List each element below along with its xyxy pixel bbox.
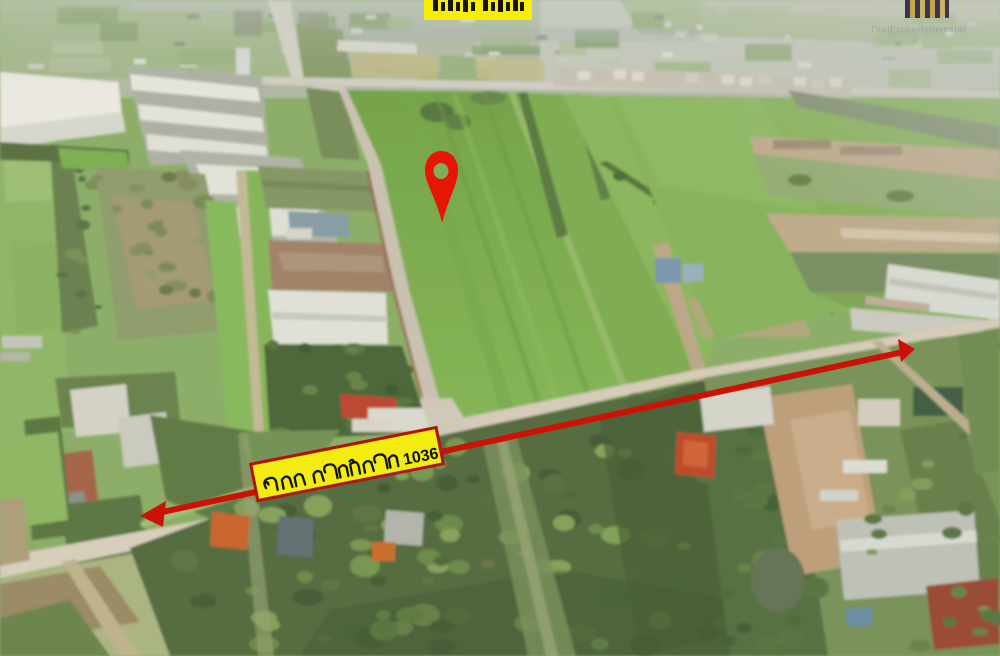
svg-text:ThaiPropertyInvestor: ThaiPropertyInvestor [870,24,967,34]
